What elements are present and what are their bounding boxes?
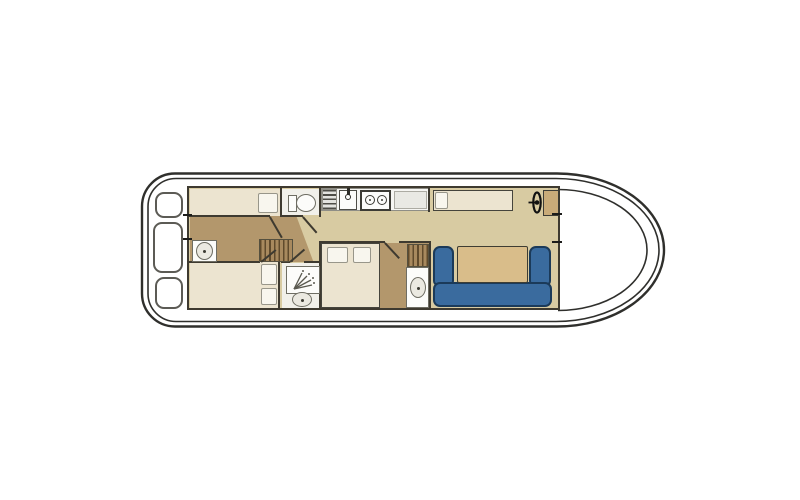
washbasin-bowl [196, 242, 213, 260]
wall-tick [183, 238, 192, 241]
bow-door-tick [552, 213, 562, 216]
stern-locker-bottom [155, 277, 183, 309]
drain-dot [203, 250, 206, 253]
wall [189, 215, 270, 217]
burner-dot [369, 199, 372, 202]
faucet-knob [345, 194, 351, 200]
sofa-arm-right [529, 246, 551, 286]
wall [280, 215, 303, 217]
galley-stove [360, 190, 391, 211]
bed-pillow-1 [327, 247, 349, 263]
stern-locker-top [155, 192, 183, 218]
stern-locker-middle [153, 222, 183, 273]
shower-spray-icon [289, 268, 317, 292]
wall-tick [183, 214, 192, 217]
counter-segment [394, 191, 427, 210]
draining-board [322, 189, 337, 210]
starboard-berth-pillow-1 [261, 264, 277, 285]
washbasin-bowl [410, 277, 426, 298]
drain-dot [301, 299, 304, 302]
shower-washbasin [292, 292, 312, 308]
boat-floor-plan [0, 0, 800, 500]
wall [280, 188, 282, 216]
steering-wheel-icon [528, 190, 545, 215]
bed-pillow-2 [353, 247, 371, 263]
sofa-arm-left [433, 246, 455, 286]
wall [319, 188, 321, 217]
wardrobe [407, 244, 429, 267]
corridor-washbasin [192, 240, 217, 263]
wall [428, 188, 430, 212]
drain-dot [417, 287, 420, 290]
saloon-table [457, 246, 529, 283]
shower-tray [286, 266, 320, 294]
sofa-bench [433, 282, 552, 307]
toilet-bowl [296, 194, 316, 212]
cabin-washbasin [406, 267, 429, 308]
burner-dot [381, 199, 384, 202]
starboard-berth-pillow-2 [261, 288, 277, 305]
wall [278, 262, 280, 308]
port-berth-pillow [258, 193, 278, 213]
stove-burner [377, 195, 387, 205]
bench-cushion [435, 192, 449, 209]
wall [304, 261, 321, 263]
wall [399, 241, 431, 243]
stove-burner [365, 195, 375, 205]
bow-door-tick [552, 241, 562, 244]
